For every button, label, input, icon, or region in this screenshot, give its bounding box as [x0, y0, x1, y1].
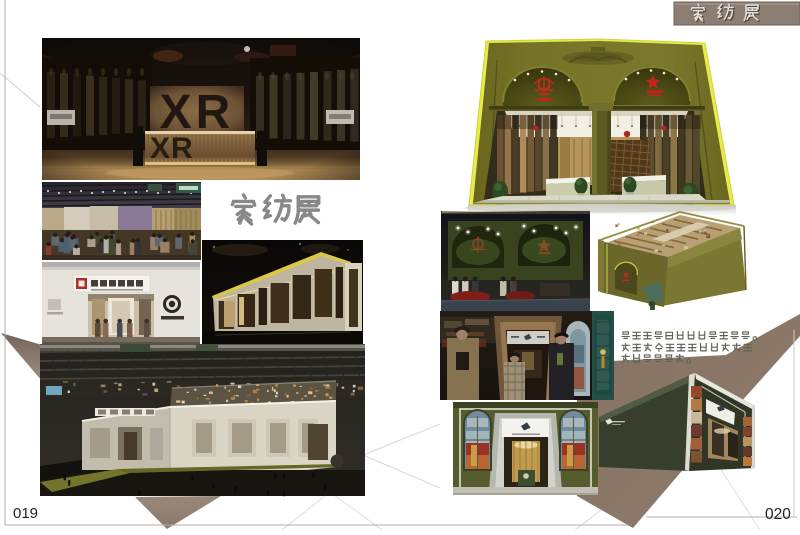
- svg-text:019: 019: [13, 505, 38, 522]
- svg-text:020: 020: [765, 506, 791, 523]
